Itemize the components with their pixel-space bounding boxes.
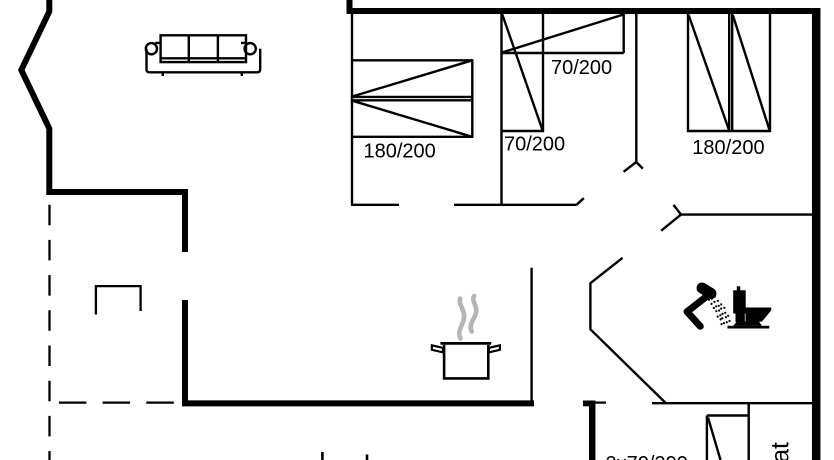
svg-text:2x70/200: 2x70/200 xyxy=(606,453,688,460)
svg-text:70/200: 70/200 xyxy=(504,133,565,155)
svg-text:70/200: 70/200 xyxy=(551,57,612,79)
svg-text:180/200: 180/200 xyxy=(692,137,764,159)
svg-text:Privat: Privat xyxy=(767,442,795,460)
svg-text:180/200: 180/200 xyxy=(364,141,436,163)
